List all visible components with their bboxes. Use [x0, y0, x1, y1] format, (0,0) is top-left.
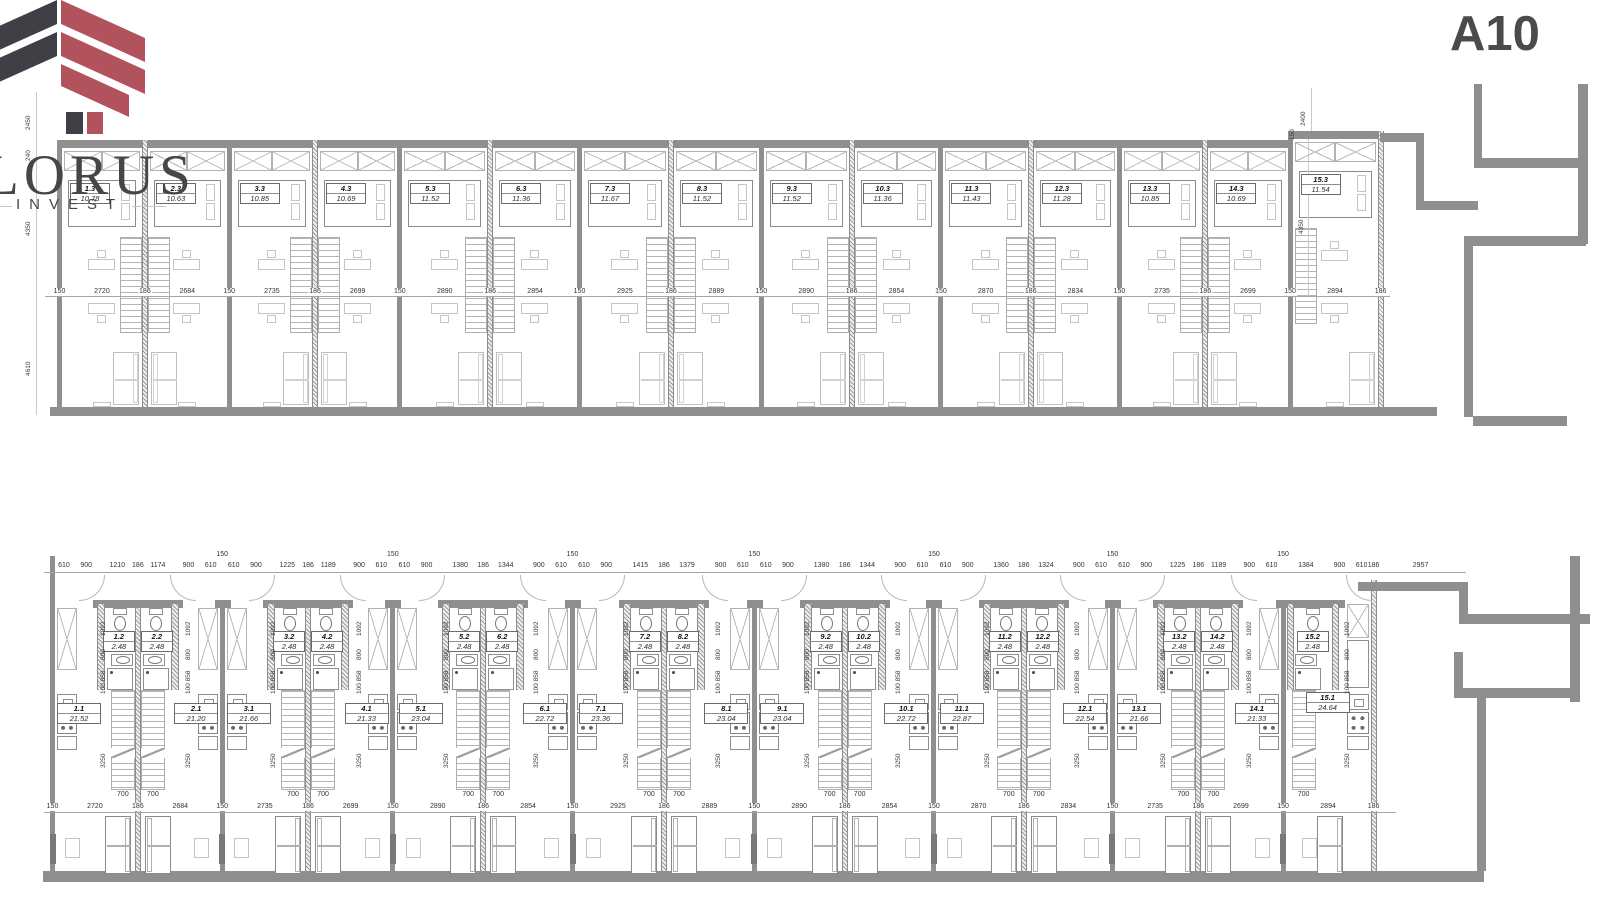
dimension-label: 3250 [894, 728, 903, 768]
dimension-label: 800 [99, 638, 108, 660]
unit-area: 21.52 [58, 714, 100, 723]
dimension-label: 3250 [442, 728, 451, 768]
unit-area: 2.48 [811, 642, 841, 651]
dimension-label: 186 [838, 562, 852, 570]
unit-id: 4.3 [327, 184, 365, 194]
dimension-label: 150 [566, 551, 580, 559]
dimension-label: 1092 [355, 604, 364, 636]
dimension-label: 3250 [983, 728, 992, 768]
unit-area: 22.54 [1064, 714, 1106, 723]
dimension-label: 1380 [451, 562, 469, 570]
unit-label: 8.311.52 [682, 183, 722, 204]
dimension-label: 700 [1176, 791, 1190, 799]
dimension-label: 100 858 [269, 662, 278, 694]
dimension-label: 100 858 [355, 662, 364, 694]
dimension-label: 186 [1017, 562, 1031, 570]
room-label: 9.123.04 [760, 703, 804, 724]
unit-id: 5.1 [400, 704, 442, 714]
dimension-label: 610 [1265, 562, 1279, 570]
dimension-label: 4610 [24, 342, 33, 376]
unit-area: 11.28 [1043, 194, 1081, 203]
bath-label: 13.22.48 [1163, 631, 1195, 652]
unit-area: 2.48 [487, 642, 517, 651]
dimension-label: 610 [759, 562, 773, 570]
bath-label: 10.22.48 [848, 631, 880, 652]
unit-id: 7.2 [630, 632, 660, 642]
dimension-label: 700 [116, 791, 130, 799]
dimension-label: 2720 [86, 803, 104, 811]
dimension-label: 2400 [1299, 92, 1308, 126]
unit-area: 11.52 [773, 194, 811, 203]
unit-id: 10.1 [885, 704, 927, 714]
dimension-label: 2894 [1319, 803, 1337, 811]
dimension-label: 900 [352, 562, 366, 570]
dimension-label: 3250 [1343, 728, 1352, 768]
unit-area: 22.87 [941, 714, 983, 723]
dimension-label: 1379 [678, 562, 696, 570]
dimension-label: 100 858 [1343, 662, 1352, 694]
dimension-label: 610 [374, 562, 388, 570]
unit-label: 13.310.85 [1130, 183, 1170, 204]
dimension-label: 1092 [532, 604, 541, 636]
dimension-label: 800 [803, 638, 812, 660]
dimension-label: 900 [182, 562, 196, 570]
sheet-code-label: A10 [1450, 8, 1540, 60]
unit-area: 22.72 [524, 714, 566, 723]
room-label: 8.123.04 [704, 703, 748, 724]
unit-id: 4.2 [312, 632, 342, 642]
dimension-label: 900 [1333, 562, 1347, 570]
unit-area: 2.48 [849, 642, 879, 651]
dimension-label: 186 [301, 562, 315, 570]
unit-area: 11.67 [591, 194, 629, 203]
bath-label: 11.22.48 [989, 631, 1021, 652]
dimension-label: 1092 [622, 604, 631, 636]
unit-area: 2.48 [312, 642, 342, 651]
unit-id: 12.3 [1043, 184, 1081, 194]
dimension-label: 100 858 [442, 662, 451, 694]
dimension-label: 186 [1191, 803, 1205, 811]
unit-id: 5.3 [411, 184, 449, 194]
adjacent-building-wall [1358, 582, 1468, 591]
dimension-label: 100 858 [622, 662, 631, 694]
dimension-label: 150 [215, 803, 229, 811]
dimension-label: 610 [916, 562, 930, 570]
dimension-label: 186 [138, 288, 152, 296]
adjacent-building-wall [1570, 556, 1580, 702]
dimension-label: 800 [1073, 638, 1082, 660]
dimension-label: 2890 [429, 803, 447, 811]
unit-label: 3.310.85 [240, 183, 280, 204]
unit-label: 9.311.52 [772, 183, 812, 204]
dimension-label: 186 [1017, 803, 1031, 811]
dimension-label: 150 [215, 551, 229, 559]
dimension-label: 610 [227, 562, 241, 570]
dimension-label: 3250 [269, 728, 278, 768]
dimension-label: 186 [664, 288, 678, 296]
dimension-label: 1092 [1159, 604, 1168, 636]
dimension-label: 100 858 [894, 662, 903, 694]
dimension-label: 2699 [1239, 288, 1257, 296]
unit-id: 13.2 [1164, 632, 1194, 642]
unit-id: 11.1 [941, 704, 983, 714]
dimension-label: 2894 [1326, 288, 1344, 296]
dimension-label: 186 [1198, 288, 1212, 296]
dimension-label: 1092 [1245, 604, 1254, 636]
unit-area: 10.69 [1217, 194, 1255, 203]
dimension-label: 1092 [1073, 604, 1082, 636]
dimension-label: 150 [1276, 551, 1290, 559]
dimension-label: 1092 [894, 604, 903, 636]
dimension-label: 1344 [497, 562, 515, 570]
dimension-label: 900 [781, 562, 795, 570]
dimension-label: 1092 [714, 604, 723, 636]
dimension-label: 3250 [184, 728, 193, 768]
unit-area: 23.36 [580, 714, 622, 723]
dimension-label: 3250 [1073, 728, 1082, 768]
unit-area: 22.72 [885, 714, 927, 723]
dimension-label: 186 [657, 562, 671, 570]
dimension-label: 800 [269, 638, 278, 660]
adjacent-building-wall [1416, 201, 1478, 210]
dimension-label: 150 [386, 551, 400, 559]
dimension-label: 186 [1024, 288, 1038, 296]
adjacent-building-wall [1474, 158, 1588, 168]
dimension-label: 150 [46, 803, 60, 811]
unit-id: 9.3 [773, 184, 811, 194]
dimension-label: 186 [131, 803, 145, 811]
unit-id: 8.1 [705, 704, 747, 714]
dimension-label: 2925 [609, 803, 627, 811]
unit-area: 10.69 [327, 194, 365, 203]
dimension-label: 150 [747, 551, 761, 559]
dimension-label: 150 [1106, 551, 1120, 559]
unit-id: 10.3 [864, 184, 902, 194]
adjacent-building-wall [1464, 236, 1586, 246]
dimension-label: 186 [1367, 803, 1381, 811]
dimension-label: 1225 [278, 562, 296, 570]
dimension-label: 186 [1374, 288, 1388, 296]
dimension-label: 800 [184, 638, 193, 660]
dimension-label: 2834 [1060, 803, 1078, 811]
dimension-label: 186 [131, 562, 145, 570]
unit-id: 15.3 [1302, 175, 1340, 185]
unit-id: 11.3 [952, 184, 990, 194]
dimension-label: 100 858 [184, 662, 193, 694]
unit-label: 12.311.28 [1042, 183, 1082, 204]
dimension-label: 610 [736, 562, 750, 570]
bath-label: 6.22.48 [486, 631, 518, 652]
adjacent-building-wall [1474, 84, 1482, 164]
dimension-label: 3250 [803, 728, 812, 768]
dimension-label: 2925 [616, 288, 634, 296]
dimension-label: 150 [573, 288, 587, 296]
unit-id: 9.2 [811, 632, 841, 642]
dimension-label: 2834 [1067, 288, 1085, 296]
logo-subtitle: INVEST [16, 196, 124, 214]
dimension-label: 150 [1276, 803, 1290, 811]
dimension-label: 900 [79, 562, 93, 570]
dimension-label: 700 [461, 791, 475, 799]
dimension-label: 150 [1106, 803, 1120, 811]
unit-id: 3.1 [228, 704, 270, 714]
dimension-label: 186 [476, 562, 490, 570]
unit-id: 12.1 [1064, 704, 1106, 714]
dimension-label: 900 [893, 562, 907, 570]
dimension-label: 800 [622, 638, 631, 660]
dimension-label: 700 [491, 791, 505, 799]
dimension-label: 800 [532, 638, 541, 660]
dimension-label: 2699 [1232, 803, 1250, 811]
dimension-label: 186 [845, 288, 859, 296]
dimension-label: 186 [301, 803, 315, 811]
adjacent-building-wall [1477, 698, 1486, 871]
adjacent-building-wall [1473, 416, 1567, 426]
dimension-label: 150 [927, 551, 941, 559]
dimension-label: 700 [1002, 791, 1016, 799]
dimension-label: 100 858 [714, 662, 723, 694]
unit-label: 6.311.36 [501, 183, 541, 204]
dimension-label: 150 [386, 803, 400, 811]
dimension-label: 2735 [1153, 288, 1171, 296]
unit-area: 2.48 [990, 642, 1020, 651]
unit-id: 3.3 [241, 184, 279, 194]
unit-area: 21.20 [175, 714, 217, 723]
dimension-label: 150 [747, 803, 761, 811]
dimension-label: 900 [420, 562, 434, 570]
dimension-label: 1380 [813, 562, 831, 570]
adjacent-building-wall [1454, 688, 1580, 698]
dimension-label: 150 [934, 288, 948, 296]
dimension-label: 150 [754, 288, 768, 296]
room-label: 2.121.20 [174, 703, 218, 724]
dimension-label: 100 858 [1245, 662, 1254, 694]
room-label: 10.122.72 [884, 703, 928, 724]
bath-label: 7.22.48 [629, 631, 661, 652]
bath-label: 2.22.48 [141, 631, 173, 652]
dimension-label: 2870 [970, 803, 988, 811]
dimension-label: 1189 [320, 562, 337, 570]
dimension-label: 1092 [803, 604, 812, 636]
dimension-label: 900 [1139, 562, 1153, 570]
bath-label: 8.22.48 [667, 631, 699, 652]
dimension-label: 610 [397, 562, 411, 570]
unit-area: 21.66 [1118, 714, 1160, 723]
unit-id: 6.2 [487, 632, 517, 642]
unit-id: 15.2 [1298, 632, 1328, 642]
unit-id: 9.1 [761, 704, 803, 714]
room-label: 15.124.64 [1306, 692, 1350, 713]
dimension-label: 800 [1245, 638, 1254, 660]
dimension-label: 900 [961, 562, 975, 570]
bath-label: 15.22.48 [1297, 631, 1329, 652]
unit-id: 7.1 [580, 704, 622, 714]
dimension-label: 2735 [256, 803, 274, 811]
unit-id: 13.3 [1131, 184, 1169, 194]
unit-area: 2.48 [668, 642, 698, 651]
dimension-label: 150 [927, 803, 941, 811]
dimension-label: 150 [1283, 288, 1297, 296]
adjacent-building-wall [1464, 246, 1473, 417]
dimension-label: 800 [1159, 638, 1168, 660]
unit-area: 2.48 [1028, 642, 1058, 651]
unit-area: 2.48 [1202, 642, 1232, 651]
unit-area: 11.54 [1302, 185, 1340, 194]
room-label: 14.121.33 [1235, 703, 1279, 724]
unit-id: 12.2 [1028, 632, 1058, 642]
dimension-label: 800 [442, 638, 451, 660]
dimension-label: 2890 [797, 288, 815, 296]
dimension-label: 186 [1191, 562, 1205, 570]
unit-area: 21.66 [228, 714, 270, 723]
dimension-label: 700 [146, 791, 160, 799]
room-label: 1.121.52 [57, 703, 101, 724]
bath-label: 9.22.48 [810, 631, 842, 652]
dimension-label: 186 [476, 803, 490, 811]
unit-area: 10.85 [241, 194, 279, 203]
room-label: 5.123.04 [399, 703, 443, 724]
unit-area: 11.52 [683, 194, 721, 203]
dimension-label: 100 858 [532, 662, 541, 694]
unit-area: 2.48 [1298, 642, 1328, 651]
dimension-label: 150 [1113, 288, 1127, 296]
dimension-label: 610 [1094, 562, 1108, 570]
unit-label: 15.311.54 [1301, 174, 1341, 195]
dimension-label: 186 [657, 803, 671, 811]
room-label: 6.122.72 [523, 703, 567, 724]
unit-area: 24.64 [1307, 703, 1349, 712]
dimension-label: 2889 [708, 288, 726, 296]
room-label: 11.122.87 [940, 703, 984, 724]
unit-id: 8.3 [683, 184, 721, 194]
room-label: 4.121.33 [345, 703, 389, 724]
dimension-label: 2957 [1412, 562, 1430, 570]
unit-label: 14.310.69 [1216, 183, 1256, 204]
dimension-label: 2890 [790, 803, 808, 811]
dimension-label: 800 [714, 638, 723, 660]
dimension-label: 700 [1297, 791, 1311, 799]
adjacent-building-outlines [0, 0, 1600, 900]
dimension-label: 610 [554, 562, 568, 570]
unit-area: 11.36 [864, 194, 902, 203]
dimension-label: 610 [57, 562, 71, 570]
dimension-label: 1092 [1343, 604, 1352, 636]
unit-id: 6.3 [502, 184, 540, 194]
dimension-label: 700 [1206, 791, 1220, 799]
dimension-label: 610 [577, 562, 591, 570]
dimension-label: 1384 [1297, 562, 1315, 570]
dimension-label: 1092 [99, 604, 108, 636]
unit-id: 6.1 [524, 704, 566, 714]
dimension-label: 150 [566, 803, 580, 811]
dimension-label: 2889 [701, 803, 719, 811]
dimension-label: 1324 [1037, 562, 1055, 570]
unit-id: 1.1 [58, 704, 100, 714]
dimension-label: 150 [393, 288, 407, 296]
dimension-label: 700 [823, 791, 837, 799]
dimension-label: 2720 [93, 288, 111, 296]
dimension-label: 1415 [632, 562, 650, 570]
floorplan-sheet: LORUS INVEST A10 1.310.782.310.633.310.8… [0, 0, 1600, 900]
dimension-label: 700 [316, 791, 330, 799]
dimension-label: 900 [532, 562, 546, 570]
logo-building-icon [0, 0, 170, 140]
room-label: 12.122.54 [1063, 703, 1107, 724]
bath-label: 14.22.48 [1201, 631, 1233, 652]
bath-label: 4.22.48 [311, 631, 343, 652]
dimension-label: 150 [1288, 124, 1297, 140]
dimension-label: 2854 [519, 803, 537, 811]
unit-label: 7.311.67 [590, 183, 630, 204]
dimension-label: 800 [355, 638, 364, 660]
dimension-label: 800 [983, 638, 992, 660]
dimension-label: 186 [483, 288, 497, 296]
dimension-label: 610 [204, 562, 218, 570]
dimension-label: 150 [222, 288, 236, 296]
unit-id: 2.2 [142, 632, 172, 642]
dimension-label: 3250 [1159, 728, 1168, 768]
dimension-label: 2854 [888, 288, 906, 296]
unit-area: 2.48 [1164, 642, 1194, 651]
unit-area: 2.48 [449, 642, 479, 651]
unit-id: 8.2 [668, 632, 698, 642]
unit-area: 23.04 [705, 714, 747, 723]
dimension-label: 186 [308, 288, 322, 296]
dimension-label: 1092 [442, 604, 451, 636]
dimension-label: 1360 [992, 562, 1010, 570]
dimension-label: 100 858 [983, 662, 992, 694]
dimension-label: 2890 [436, 288, 454, 296]
unit-id: 7.3 [591, 184, 629, 194]
dimension-label: 2870 [977, 288, 995, 296]
unit-area: 23.04 [400, 714, 442, 723]
dimension-label: 1092 [269, 604, 278, 636]
unit-area: 2.48 [104, 642, 134, 651]
room-label: 3.121.66 [227, 703, 271, 724]
dimension-label: 3250 [99, 728, 108, 768]
unit-id: 14.2 [1202, 632, 1232, 642]
dimension-label: 2699 [342, 803, 360, 811]
dimension-label: 700 [853, 791, 867, 799]
dimension-label: 900 [714, 562, 728, 570]
dimension-label: 2854 [526, 288, 544, 296]
dimension-label: 900 [1243, 562, 1257, 570]
dimension-label: 1344 [858, 562, 876, 570]
unit-area: 2.48 [274, 642, 304, 651]
room-label: 13.121.66 [1117, 703, 1161, 724]
unit-id: 3.2 [274, 632, 304, 642]
dimension-label: 800 [1343, 638, 1352, 660]
unit-id: 14.3 [1217, 184, 1255, 194]
unit-id: 2.1 [175, 704, 217, 714]
unit-label: 10.311.36 [863, 183, 903, 204]
unit-area: 21.33 [1236, 714, 1278, 723]
unit-id: 10.2 [849, 632, 879, 642]
unit-area: 10.85 [1131, 194, 1169, 203]
dimension-label: 100 858 [1073, 662, 1082, 694]
unit-area: 21.33 [346, 714, 388, 723]
dimension-label: 1225 [1169, 562, 1187, 570]
dimension-label: 2735 [1146, 803, 1164, 811]
dimension-label: 700 [672, 791, 686, 799]
dimension-label: 186 [838, 803, 852, 811]
dimension-label: 800 [894, 638, 903, 660]
unit-area: 11.36 [502, 194, 540, 203]
unit-id: 15.1 [1307, 693, 1349, 703]
dimension-label: 900 [1072, 562, 1086, 570]
unit-area: 2.48 [630, 642, 660, 651]
dimension-label: 3250 [355, 728, 364, 768]
